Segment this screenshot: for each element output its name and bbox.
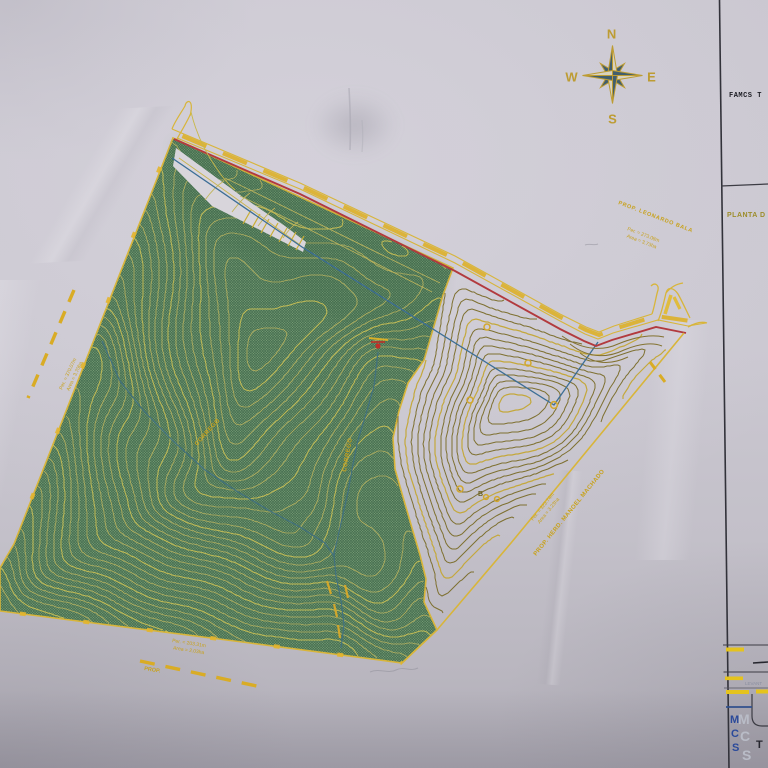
svg-text:B: B [478,491,483,498]
svg-text:T: T [756,739,763,751]
svg-text:PLANTA D: PLANTA D [727,212,766,219]
svg-text:S: S [732,742,739,754]
svg-text:LEVANT: LEVANT [745,681,762,686]
svg-text:W: W [565,70,578,85]
svg-text:S: S [742,747,751,763]
svg-text:M: M [738,711,750,727]
svg-text:C: C [731,728,739,740]
svg-text:E: E [647,70,656,85]
svg-text:PROP.: PROP. [144,666,162,675]
svg-text:S: S [608,112,617,127]
svg-text:C: C [740,728,750,744]
svg-text:M: M [730,714,739,726]
svg-text:N: N [607,27,616,42]
svg-text:FAMCS T: FAMCS T [729,92,762,100]
